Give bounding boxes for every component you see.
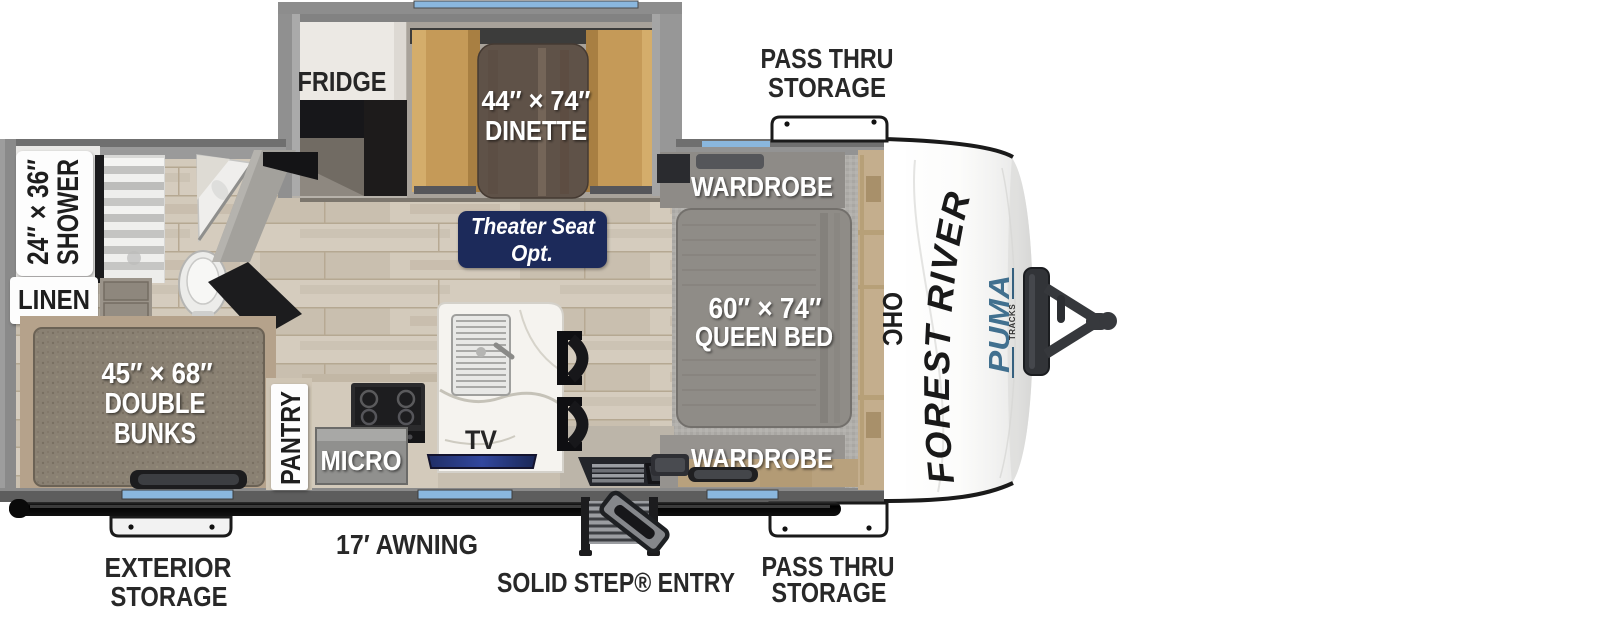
svg-text:SOLID STEP® ENTRY: SOLID STEP® ENTRY	[497, 567, 735, 598]
svg-text:LINEN: LINEN	[18, 284, 90, 315]
svg-text:BUNKS: BUNKS	[114, 418, 196, 450]
svg-text:STORAGE: STORAGE	[768, 72, 886, 103]
svg-text:STORAGE: STORAGE	[111, 581, 228, 612]
svg-text:PANTRY: PANTRY	[275, 391, 306, 485]
svg-text:45″ × 68″: 45″ × 68″	[102, 358, 213, 390]
svg-text:DOUBLE: DOUBLE	[105, 388, 206, 420]
svg-text:MICRO: MICRO	[321, 445, 402, 476]
svg-text:WARDROBE: WARDROBE	[691, 171, 833, 202]
svg-text:44″ × 74″: 44″ × 74″	[482, 85, 591, 116]
svg-text:24″ × 36″: 24″ × 36″	[22, 159, 55, 265]
svg-text:EXTERIOR: EXTERIOR	[105, 552, 232, 583]
svg-text:FRIDGE: FRIDGE	[298, 66, 387, 97]
svg-text:TRACKS: TRACKS	[1008, 304, 1017, 340]
svg-text:SHOWER: SHOWER	[52, 159, 85, 265]
svg-text:17′ AWNING: 17′ AWNING	[336, 529, 478, 560]
svg-text:STORAGE: STORAGE	[772, 577, 887, 608]
svg-text:PASS THRU: PASS THRU	[761, 43, 894, 74]
svg-text:TV: TV	[465, 425, 497, 455]
svg-text:QUEEN BED: QUEEN BED	[695, 321, 833, 352]
svg-text:DINETTE: DINETTE	[485, 115, 587, 146]
svg-text:Opt.: Opt.	[511, 240, 553, 266]
svg-text:Theater Seat: Theater Seat	[471, 213, 596, 239]
svg-text:OHC: OHC	[877, 292, 908, 346]
